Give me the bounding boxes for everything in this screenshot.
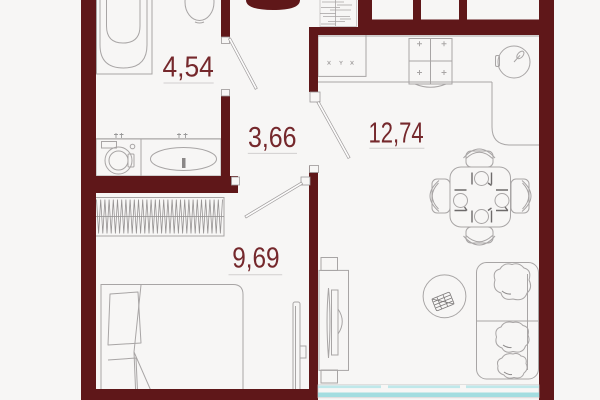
svg-text:3,66: 3,66 [248, 121, 297, 153]
svg-text:9,69: 9,69 [232, 241, 279, 273]
svg-text:4,54: 4,54 [163, 50, 214, 82]
svg-text:12,74: 12,74 [369, 118, 424, 150]
